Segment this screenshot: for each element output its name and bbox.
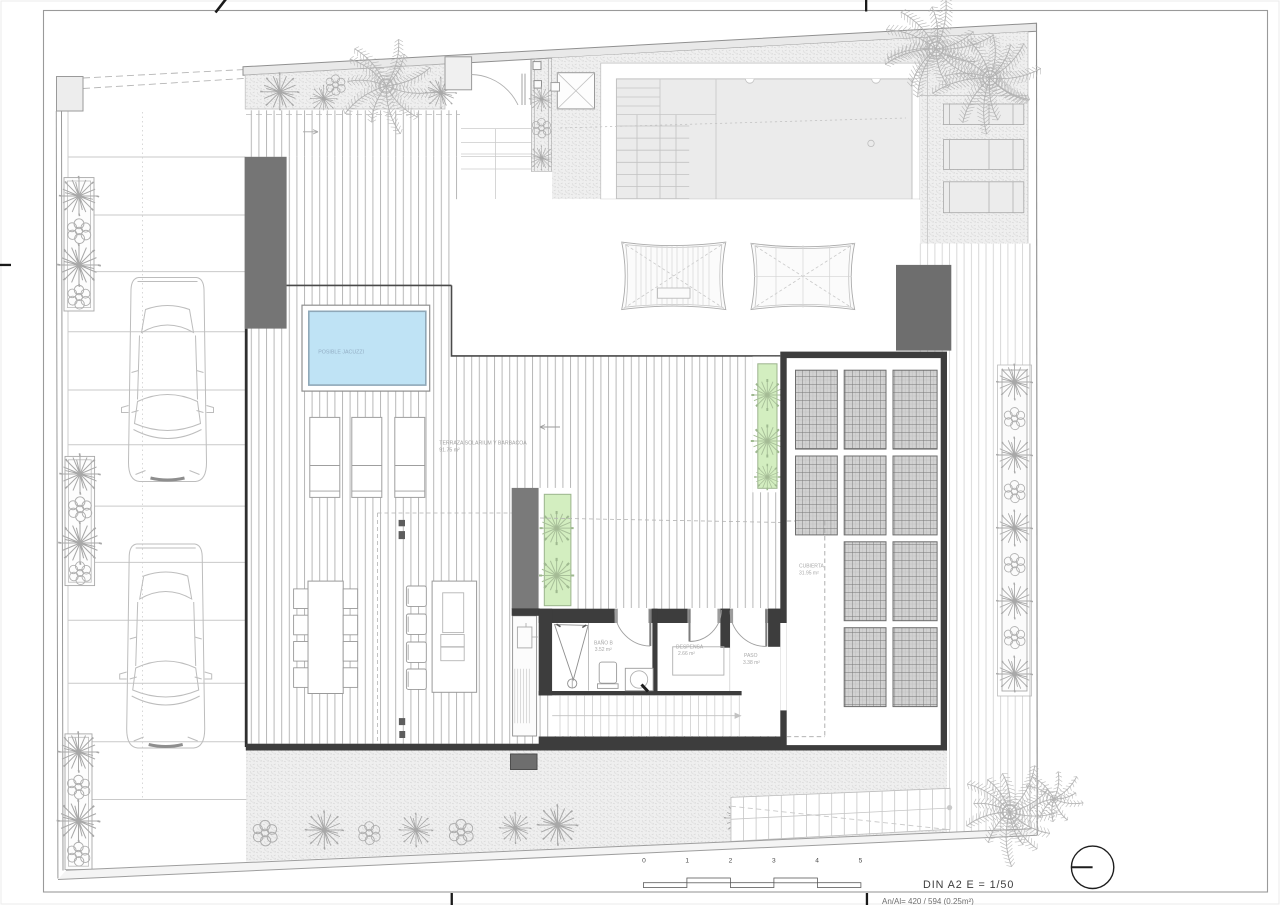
svg-text:91.75 m²: 91.75 m² xyxy=(439,448,460,454)
svg-text:2.66 m²: 2.66 m² xyxy=(678,651,695,657)
svg-text:3: 3 xyxy=(772,858,776,865)
svg-text:4: 4 xyxy=(815,858,819,865)
svg-text:3.38 m²: 3.38 m² xyxy=(743,660,760,666)
svg-text:BAÑO B: BAÑO B xyxy=(594,640,614,647)
svg-text:31.95 m²: 31.95 m² xyxy=(799,571,819,577)
svg-text:POSIBLE JACUZZI: POSIBLE JACUZZI xyxy=(318,350,364,356)
svg-text:DIN A2 E = 1/50: DIN A2 E = 1/50 xyxy=(923,879,1014,891)
svg-text:CUBIERTA: CUBIERTA xyxy=(799,564,824,570)
svg-text:PASO: PASO xyxy=(744,653,758,659)
svg-text:5: 5 xyxy=(859,858,863,865)
svg-text:2: 2 xyxy=(729,858,733,865)
svg-text:An/Al= 420 / 594 (0.25m²): An/Al= 420 / 594 (0.25m²) xyxy=(882,897,974,905)
svg-text:DESPENSA: DESPENSA xyxy=(676,645,704,651)
svg-text:1: 1 xyxy=(685,858,689,865)
svg-text:0: 0 xyxy=(642,858,646,865)
svg-text:TERRAZA SOLARIUM Y BARBACOA: TERRAZA SOLARIUM Y BARBACOA xyxy=(439,441,527,447)
svg-text:3.52 m²: 3.52 m² xyxy=(595,647,612,653)
